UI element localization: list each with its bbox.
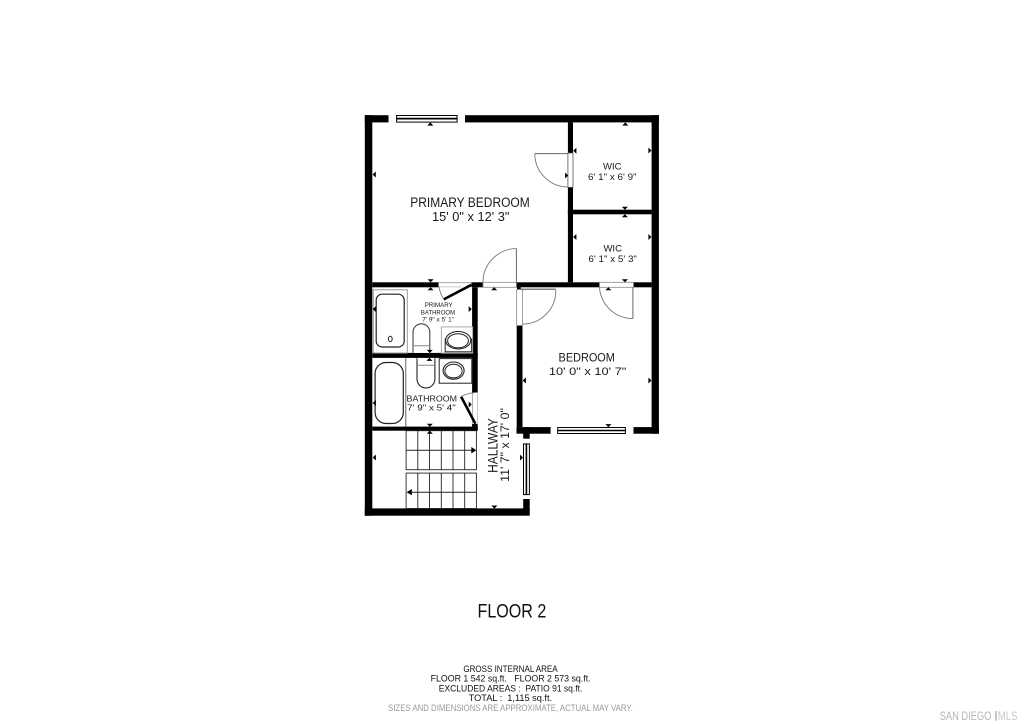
svg-text:FLOOR 1 542 sq.ft. FLOOR 2 5: FLOOR 1 542 sq.ft. FLOOR 2 573 sq.ft.: [431, 674, 591, 684]
svg-text:7' 9" x 5' 4": 7' 9" x 5' 4": [407, 402, 456, 412]
svg-text:TOTAL : 1,115 sq.ft.: TOTAL : 1,115 sq.ft.: [469, 693, 552, 703]
svg-text:11' 7" x 17' 0": 11' 7" x 17' 0": [498, 408, 512, 482]
svg-text:WIC: WIC: [603, 244, 622, 255]
svg-text:WIC: WIC: [603, 162, 622, 173]
svg-text:SIZES AND DIMENSIONS ARE APPRO: SIZES AND DIMENSIONS ARE APPROXIMATE, AC…: [388, 703, 633, 713]
svg-text:15' 0" x 12' 3": 15' 0" x 12' 3": [432, 209, 510, 224]
svg-text:6' 1" x 6' 9": 6' 1" x 6' 9": [588, 172, 637, 182]
svg-text:7' 9" x 5' 1": 7' 9" x 5' 1": [422, 316, 454, 323]
svg-text:BEDROOM: BEDROOM: [559, 353, 615, 365]
svg-text:SAN DIEGO: SAN DIEGO: [940, 709, 992, 723]
svg-text:PRIMARY BEDROOM: PRIMARY BEDROOM: [410, 195, 530, 210]
svg-text:10' 0" x 10' 7": 10' 0" x 10' 7": [549, 366, 627, 378]
svg-text:FLOOR 2: FLOOR 2: [478, 600, 547, 622]
svg-text:PRIMARY: PRIMARY: [425, 302, 453, 309]
svg-text:EXCLUDED AREAS : PATIO 91 sq.: EXCLUDED AREAS : PATIO 91 sq.ft.: [439, 683, 583, 693]
svg-text:6' 1" x 5' 3": 6' 1" x 5' 3": [588, 254, 637, 264]
svg-text:MLS: MLS: [998, 709, 1018, 723]
svg-text:GROSS INTERNAL AREA: GROSS INTERNAL AREA: [463, 664, 558, 674]
